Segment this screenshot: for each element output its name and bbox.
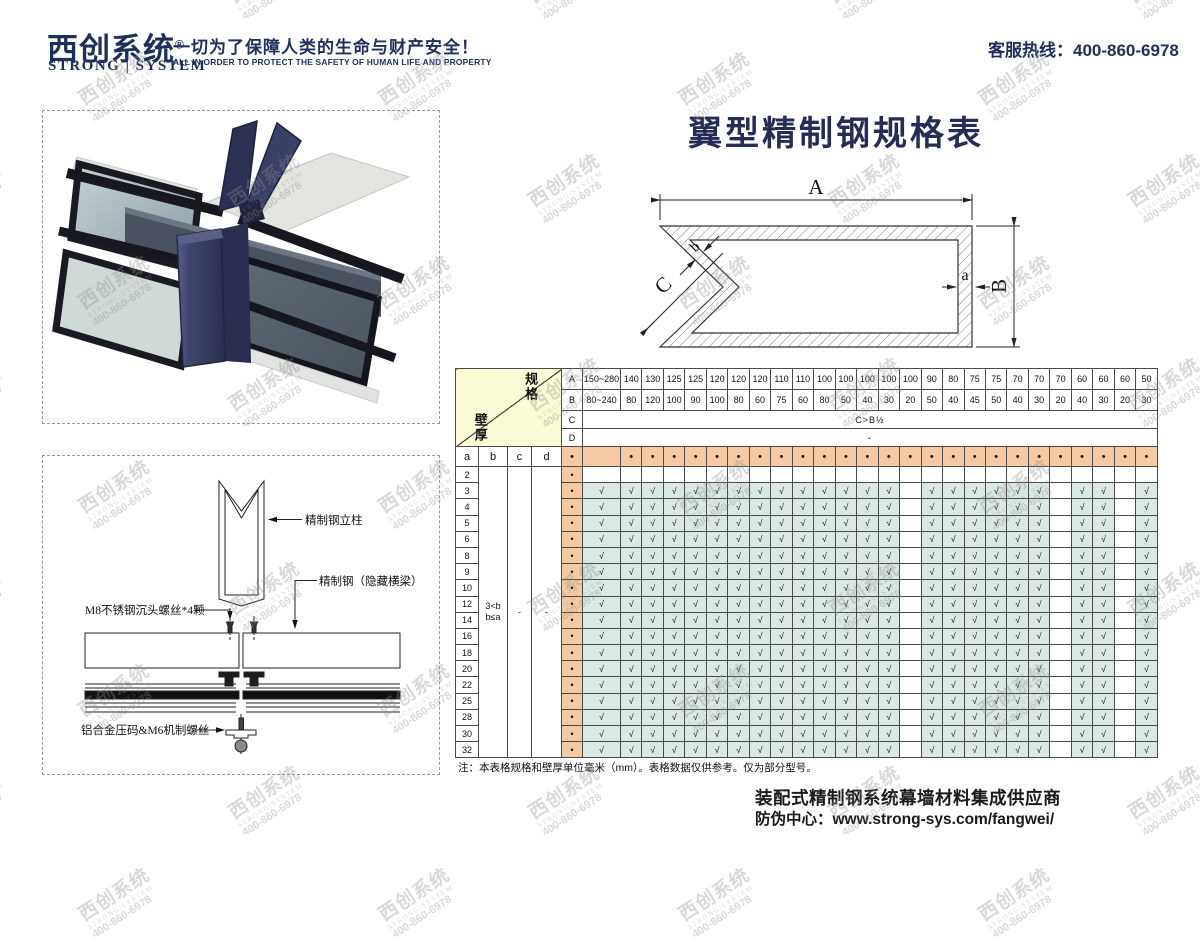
check-cell: √ <box>621 628 642 644</box>
dim-A-label: A <box>808 175 824 199</box>
check-cell: √ <box>663 677 684 693</box>
check-cell: √ <box>642 483 663 499</box>
empty-cell <box>1050 677 1071 693</box>
check-cell: √ <box>642 677 663 693</box>
check-cell: √ <box>706 709 727 725</box>
check-cell: √ <box>1093 531 1114 547</box>
check-cell: √ <box>1136 499 1157 515</box>
check-cell: √ <box>835 515 856 531</box>
dim-B-value: 20 <box>1114 390 1135 411</box>
check-cell: √ <box>1071 547 1092 563</box>
check-cell: √ <box>857 580 878 596</box>
check-cell: √ <box>1093 726 1114 742</box>
check-cell: √ <box>728 693 749 709</box>
dim-B-value: 20 <box>900 390 921 411</box>
check-cell: √ <box>792 645 813 661</box>
empty-cell <box>1114 612 1135 628</box>
check-cell: √ <box>1028 580 1049 596</box>
check-cell: √ <box>964 612 985 628</box>
dim-B-value: 40 <box>857 390 878 411</box>
empty-cell <box>1050 661 1071 677</box>
screw-symbols <box>227 616 258 640</box>
empty-cell <box>857 467 878 483</box>
check-cell: √ <box>583 726 621 742</box>
check-cell: √ <box>728 612 749 628</box>
check-cell: √ <box>642 515 663 531</box>
profile-outer-outline <box>660 226 972 347</box>
dim-B-value: 50 <box>921 390 942 411</box>
empty-cell <box>583 467 621 483</box>
check-cell: √ <box>921 580 942 596</box>
check-cell: √ <box>792 661 813 677</box>
check-cell: √ <box>706 564 727 580</box>
check-cell: √ <box>1136 709 1157 725</box>
marker-cell: • <box>921 447 942 467</box>
empty-cell <box>1007 467 1028 483</box>
glass-section <box>85 684 400 712</box>
check-cell: √ <box>685 726 706 742</box>
spec-table-grid: 规格壁厚A150~2801401301251251201201201101101… <box>455 368 1158 758</box>
check-cell: √ <box>964 483 985 499</box>
check-cell: √ <box>771 709 792 725</box>
empty-cell <box>900 580 921 596</box>
check-cell: √ <box>749 483 770 499</box>
check-cell: √ <box>706 677 727 693</box>
check-cell: √ <box>749 499 770 515</box>
check-cell: √ <box>921 499 942 515</box>
check-cell: √ <box>728 596 749 612</box>
empty-cell <box>771 467 792 483</box>
watermark: 西创系统STRONG|SYSTEM400-860-6978 <box>0 151 14 227</box>
row-label-A: A <box>562 369 583 390</box>
dim-B-value: 40 <box>943 390 964 411</box>
check-cell: √ <box>835 726 856 742</box>
watermark: 西创系统STRONG|SYSTEM400-860-6978 <box>0 763 14 839</box>
check-cell: √ <box>771 531 792 547</box>
empty-cell <box>1114 628 1135 644</box>
check-cell: √ <box>964 709 985 725</box>
dim-A-value: 140 <box>621 369 642 390</box>
check-cell: √ <box>1028 499 1049 515</box>
check-cell: √ <box>857 596 878 612</box>
check-cell: √ <box>985 677 1006 693</box>
marker-cell: • <box>900 447 921 467</box>
check-cell: √ <box>878 531 899 547</box>
empty-cell <box>1050 596 1071 612</box>
spec-row: 规格壁厚A150~2801401301251251201201201101101… <box>456 369 1158 390</box>
marker-cell: • <box>562 531 583 547</box>
check-cell: √ <box>921 742 942 758</box>
check-cell: √ <box>1007 564 1028 580</box>
check-cell: √ <box>857 564 878 580</box>
check-cell: √ <box>728 628 749 644</box>
check-cell: √ <box>663 628 684 644</box>
check-cell: √ <box>1093 612 1114 628</box>
thickness-a-value: 10 <box>456 580 479 596</box>
spec-row: 30•√√√√√√√√√√√√√√√√√√√√√√√ <box>456 726 1158 742</box>
empty-cell <box>900 645 921 661</box>
check-cell: √ <box>792 628 813 644</box>
check-cell: √ <box>985 564 1006 580</box>
check-cell: √ <box>835 547 856 563</box>
marker-cell: • <box>562 661 583 677</box>
check-cell: √ <box>1007 693 1028 709</box>
spec-row: 3•√√√√√√√√√√√√√√√√√√√√√√√ <box>456 483 1158 499</box>
slogan-cn: 一切为了保障人类的生命与财产安全！ <box>173 33 479 58</box>
check-cell: √ <box>1028 693 1049 709</box>
check-cell: √ <box>663 483 684 499</box>
mullion-front-fin <box>177 229 225 367</box>
watermark: 西创系统STRONG|SYSTEM400-860-6978 <box>376 865 464 941</box>
check-cell: √ <box>878 628 899 644</box>
check-cell: √ <box>814 596 835 612</box>
check-cell: √ <box>835 677 856 693</box>
beam-right <box>243 633 400 668</box>
empty-cell <box>900 742 921 758</box>
check-cell: √ <box>1071 677 1092 693</box>
check-cell: √ <box>706 628 727 644</box>
empty-cell <box>878 467 899 483</box>
check-cell: √ <box>835 645 856 661</box>
check-cell: √ <box>1071 515 1092 531</box>
label-screw: M8不锈钢沉头螺丝*4颗 <box>85 604 205 617</box>
check-cell: √ <box>621 661 642 677</box>
check-cell: √ <box>1071 628 1092 644</box>
marker-cell: • <box>985 447 1006 467</box>
empty-cell <box>1050 564 1071 580</box>
check-cell: √ <box>728 726 749 742</box>
check-cell: √ <box>921 628 942 644</box>
check-cell: √ <box>943 515 964 531</box>
check-cell: √ <box>857 709 878 725</box>
check-cell: √ <box>1136 564 1157 580</box>
check-cell: √ <box>685 661 706 677</box>
check-cell: √ <box>1007 742 1028 758</box>
dim-A-value: 120 <box>706 369 727 390</box>
marker-cell: • <box>562 742 583 758</box>
empty-cell <box>1050 645 1071 661</box>
check-cell: √ <box>1028 661 1049 677</box>
check-cell: √ <box>835 483 856 499</box>
check-cell: √ <box>728 564 749 580</box>
empty-cell <box>814 467 835 483</box>
thickness-a-value: 6 <box>456 531 479 547</box>
check-cell: √ <box>814 483 835 499</box>
empty-cell <box>1050 628 1071 644</box>
check-cell: √ <box>878 693 899 709</box>
check-cell: √ <box>835 499 856 515</box>
marker-cell: • <box>943 447 964 467</box>
empty-cell <box>1136 467 1157 483</box>
c-value-cell: - <box>508 467 532 758</box>
check-cell: √ <box>1093 645 1114 661</box>
row-label-B: B <box>562 390 583 411</box>
dim-a-label: a <box>961 267 968 284</box>
check-cell: √ <box>706 645 727 661</box>
page-title: 翼型精制钢规格表 <box>620 106 1052 155</box>
check-cell: √ <box>857 628 878 644</box>
empty-cell <box>1050 467 1071 483</box>
check-cell: √ <box>642 726 663 742</box>
check-cell: √ <box>583 580 621 596</box>
check-cell: √ <box>921 677 942 693</box>
check-cell: √ <box>583 693 621 709</box>
empty-cell <box>1114 693 1135 709</box>
check-cell: √ <box>1071 531 1092 547</box>
check-cell: √ <box>621 612 642 628</box>
check-cell: √ <box>1136 742 1157 758</box>
check-cell: √ <box>814 628 835 644</box>
empty-cell <box>1028 467 1049 483</box>
empty-cell <box>900 709 921 725</box>
check-cell: √ <box>878 483 899 499</box>
check-cell: √ <box>685 515 706 531</box>
check-cell: √ <box>1028 726 1049 742</box>
check-cell: √ <box>921 645 942 661</box>
check-cell: √ <box>685 677 706 693</box>
check-cell: √ <box>642 612 663 628</box>
section-drawing-panel: 精制钢立柱 精制钢（隐藏横梁） M8不锈钢沉头螺丝*4颗 铝合金压码&M6机制螺… <box>42 455 440 775</box>
check-cell: √ <box>857 547 878 563</box>
dim-b-arrow1 <box>680 260 695 275</box>
dim-A-value: 75 <box>964 369 985 390</box>
thickness-a-value: 9 <box>456 564 479 580</box>
check-cell: √ <box>583 645 621 661</box>
empty-cell <box>1114 677 1135 693</box>
check-cell: √ <box>1093 547 1114 563</box>
dim-A-value: 70 <box>1050 369 1071 390</box>
empty-cell <box>900 531 921 547</box>
check-cell: √ <box>921 661 942 677</box>
dim-B-value: 80 <box>814 390 835 411</box>
check-cell: √ <box>792 564 813 580</box>
spec-row: 8•√√√√√√√√√√√√√√√√√√√√√√√ <box>456 547 1158 563</box>
spec-row: 28•√√√√√√√√√√√√√√√√√√√√√√√ <box>456 709 1158 725</box>
check-cell: √ <box>985 483 1006 499</box>
empty-cell <box>1114 515 1135 531</box>
check-cell: √ <box>857 612 878 628</box>
check-cell: √ <box>835 628 856 644</box>
check-cell: √ <box>1028 645 1049 661</box>
check-cell: √ <box>1071 580 1092 596</box>
dim-B-value: 120 <box>642 390 663 411</box>
check-cell: √ <box>1071 564 1092 580</box>
marker-cell: • <box>562 483 583 499</box>
empty-cell <box>1114 726 1135 742</box>
dim-B-value: 40 <box>1007 390 1028 411</box>
spec-row: 14•√√√√√√√√√√√√√√√√√√√√√√√ <box>456 612 1158 628</box>
check-cell: √ <box>814 515 835 531</box>
marker-cell: • <box>562 515 583 531</box>
check-cell: √ <box>1071 645 1092 661</box>
marker-cell: • <box>857 447 878 467</box>
marker-cell: • <box>562 499 583 515</box>
check-cell: √ <box>943 709 964 725</box>
section-drawing: 精制钢立柱 精制钢（隐藏横梁） M8不锈钢沉头螺丝*4颗 铝合金压码&M6机制螺… <box>43 456 439 774</box>
check-cell: √ <box>792 515 813 531</box>
check-cell: √ <box>685 531 706 547</box>
check-cell: √ <box>749 726 770 742</box>
check-cell: √ <box>835 661 856 677</box>
check-cell: √ <box>663 531 684 547</box>
dim-B-value: 20 <box>1050 390 1071 411</box>
check-cell: √ <box>749 547 770 563</box>
check-cell: √ <box>621 564 642 580</box>
row-label-C: C <box>562 411 583 429</box>
footer-anticounterfeit-url: 防伪中心：www.strong-sys.com/fangwei/ <box>755 807 1054 829</box>
check-cell: √ <box>728 677 749 693</box>
check-cell: √ <box>964 645 985 661</box>
check-cell: √ <box>1093 693 1114 709</box>
empty-cell <box>900 547 921 563</box>
marker-cell: • <box>1028 447 1049 467</box>
check-cell: √ <box>878 742 899 758</box>
check-cell: √ <box>1028 677 1049 693</box>
empty-cell <box>1114 547 1135 563</box>
check-cell: √ <box>642 596 663 612</box>
label-column: 精制钢立柱 <box>305 513 363 527</box>
marker-cell: • <box>642 447 663 467</box>
check-cell: √ <box>792 483 813 499</box>
spec-row: 9•√√√√√√√√√√√√√√√√√√√√√√√ <box>456 564 1158 580</box>
check-cell: √ <box>583 564 621 580</box>
check-cell: √ <box>1071 612 1092 628</box>
check-cell: √ <box>621 499 642 515</box>
dim-B-value: 75 <box>771 390 792 411</box>
check-cell: √ <box>1028 596 1049 612</box>
check-cell: √ <box>749 596 770 612</box>
marker-cell: • <box>878 447 899 467</box>
thickness-a-value: 22 <box>456 677 479 693</box>
check-cell: √ <box>1136 726 1157 742</box>
empty-cell <box>1114 531 1135 547</box>
check-cell: √ <box>749 693 770 709</box>
marker-cell: • <box>562 467 583 483</box>
check-cell: √ <box>642 645 663 661</box>
check-cell: √ <box>685 499 706 515</box>
check-cell: √ <box>985 742 1006 758</box>
watermark: 西创系统STRONG|SYSTEM400-860-6978 <box>976 865 1064 941</box>
check-cell: √ <box>728 645 749 661</box>
check-cell: √ <box>814 742 835 758</box>
check-cell: √ <box>706 612 727 628</box>
empty-cell <box>900 661 921 677</box>
dim-A-value: 100 <box>900 369 921 390</box>
spec-row: 6•√√√√√√√√√√√√√√√√√√√√√√√ <box>456 531 1158 547</box>
check-cell: √ <box>985 580 1006 596</box>
dim-A-value: 110 <box>771 369 792 390</box>
empty-cell <box>1114 742 1135 758</box>
marker-cell: • <box>814 447 835 467</box>
check-cell: √ <box>1136 547 1157 563</box>
table-note: 注：本表格规格和壁厚单位毫米（mm）。表格数据仅供参考。仅为部分型号。 <box>458 760 817 775</box>
dim-A-value: 50 <box>1136 369 1157 390</box>
check-cell: √ <box>621 515 642 531</box>
spec-row: 10•√√√√√√√√√√√√√√√√√√√√√√√ <box>456 580 1158 596</box>
check-cell: √ <box>1136 483 1157 499</box>
check-cell: √ <box>749 580 770 596</box>
check-cell: √ <box>943 499 964 515</box>
dim-B-value: 80~240 <box>583 390 621 411</box>
check-cell: √ <box>1007 661 1028 677</box>
check-cell: √ <box>642 580 663 596</box>
dim-B-value: 50 <box>835 390 856 411</box>
check-cell: √ <box>857 483 878 499</box>
marker-cell: • <box>663 447 684 467</box>
isometric-render-panel <box>42 110 440 424</box>
check-cell: √ <box>857 726 878 742</box>
dim-B-value: 30 <box>1093 390 1114 411</box>
check-cell: √ <box>857 661 878 677</box>
check-cell: √ <box>621 709 642 725</box>
check-cell: √ <box>583 661 621 677</box>
check-cell: √ <box>921 547 942 563</box>
thickness-header-b: b <box>479 447 508 467</box>
check-cell: √ <box>663 596 684 612</box>
empty-cell <box>835 467 856 483</box>
dim-A-value: 70 <box>1007 369 1028 390</box>
check-cell: √ <box>814 612 835 628</box>
empty-cell <box>663 467 684 483</box>
check-cell: √ <box>1028 709 1049 725</box>
dim-A-value: 60 <box>1114 369 1135 390</box>
dim-B-value: 100 <box>706 390 727 411</box>
watermark: 西创系统STRONG|SYSTEM400-860-6978 <box>0 355 14 431</box>
check-cell: √ <box>792 580 813 596</box>
check-cell: √ <box>706 547 727 563</box>
check-cell: √ <box>878 564 899 580</box>
empty-cell <box>1050 580 1071 596</box>
label-beam: 精制钢（隐藏横梁） <box>319 574 423 588</box>
check-cell: √ <box>728 515 749 531</box>
check-cell: √ <box>985 709 1006 725</box>
check-cell: √ <box>1028 547 1049 563</box>
check-cell: √ <box>857 677 878 693</box>
check-cell: √ <box>1007 709 1028 725</box>
check-cell: √ <box>921 531 942 547</box>
check-cell: √ <box>685 580 706 596</box>
empty-cell <box>1114 564 1135 580</box>
check-cell: √ <box>1007 596 1028 612</box>
dim-B-value: 60 <box>792 390 813 411</box>
check-cell: √ <box>642 564 663 580</box>
empty-cell <box>900 677 921 693</box>
thickness-a-value: 8 <box>456 547 479 563</box>
spec-row: 23<bb≤a--• <box>456 467 1158 483</box>
check-cell: √ <box>771 645 792 661</box>
d-value-cell: - <box>532 467 562 758</box>
empty-cell <box>1050 547 1071 563</box>
empty-cell <box>900 564 921 580</box>
empty-cell <box>706 467 727 483</box>
check-cell: √ <box>663 564 684 580</box>
dim-B-value: 60 <box>749 390 770 411</box>
check-cell: √ <box>943 580 964 596</box>
watermark: 西创系统STRONG|SYSTEM400-860-6978 <box>1126 763 1200 839</box>
check-cell: √ <box>728 742 749 758</box>
check-cell: √ <box>985 612 1006 628</box>
check-cell: √ <box>1136 693 1157 709</box>
empty-cell <box>1050 515 1071 531</box>
check-cell: √ <box>814 693 835 709</box>
check-cell: √ <box>792 677 813 693</box>
check-cell: √ <box>1071 483 1092 499</box>
check-cell: √ <box>964 726 985 742</box>
check-cell: √ <box>985 547 1006 563</box>
check-cell: √ <box>814 709 835 725</box>
check-cell: √ <box>771 661 792 677</box>
check-cell: √ <box>878 580 899 596</box>
